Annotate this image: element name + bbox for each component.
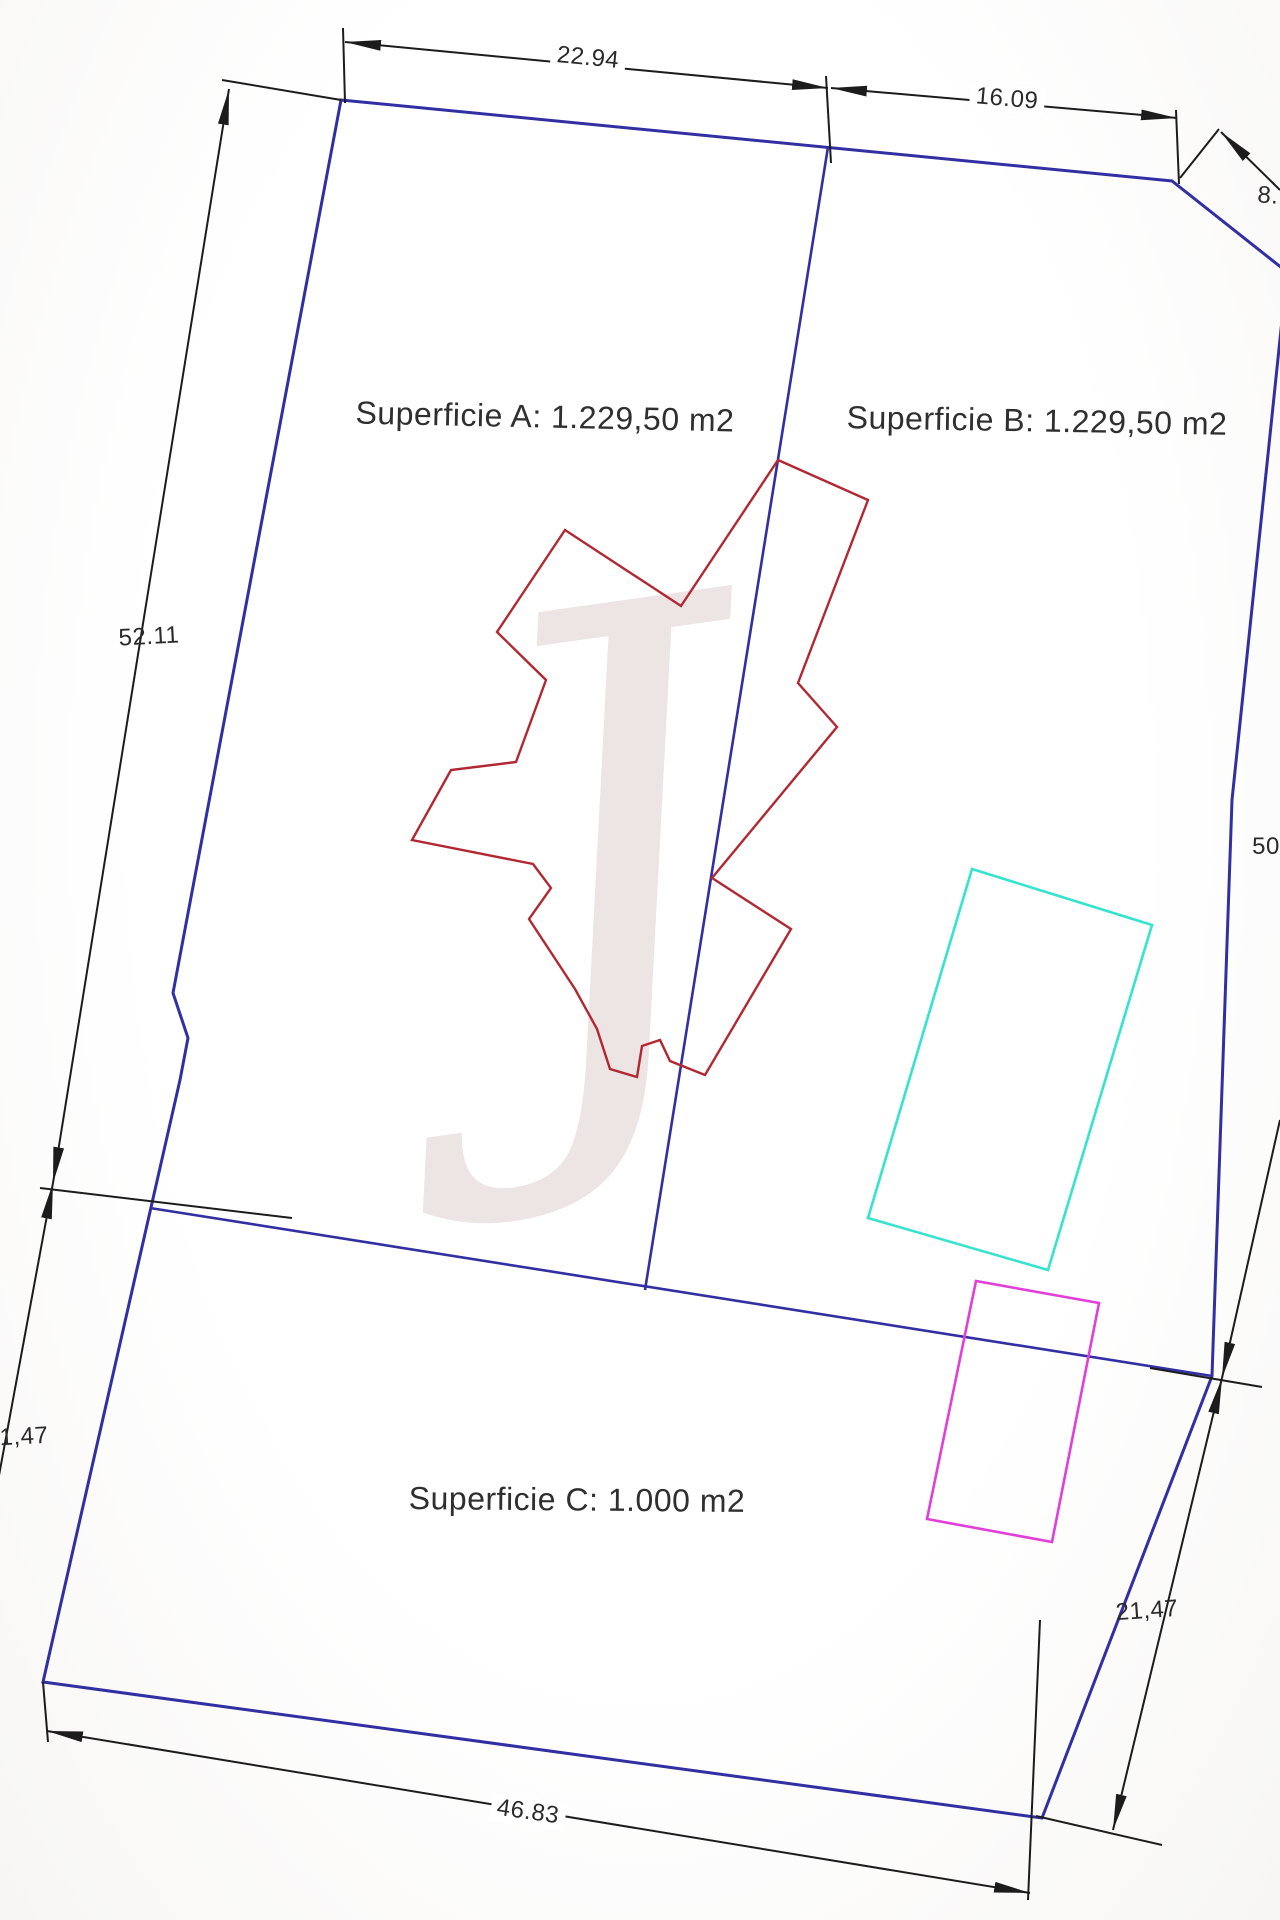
ext-chamfer-top xyxy=(1176,110,1179,184)
dim-line-1,47 xyxy=(0,1183,53,1535)
ext-chamfer-corner xyxy=(1180,129,1219,178)
divider-b-c xyxy=(150,1208,1212,1376)
ext-52.11-top xyxy=(222,80,341,100)
ext-bottom-right-horizontal xyxy=(1036,1816,1162,1845)
dim-1,47: 1,47 xyxy=(0,1422,49,1453)
divider-a-b xyxy=(645,147,828,1290)
plan-canvas: J Superficie A: 1.229,50 m2 Superficie B… xyxy=(0,0,1280,1920)
ext-bottom-left xyxy=(43,1682,48,1742)
ext-top-left-corner xyxy=(343,28,345,103)
ext-left-junction xyxy=(40,1188,292,1218)
pool-rectangle xyxy=(868,869,1152,1270)
dim-52.11: 52.11 xyxy=(118,621,180,652)
parcel-boundary xyxy=(43,100,1280,1818)
dim-21,47: 21,47 xyxy=(1115,1595,1179,1627)
ext-bottom-right-vertical xyxy=(1028,1620,1040,1900)
survey-drawing xyxy=(0,0,1280,1920)
building-footprint xyxy=(412,460,868,1077)
ext-divider-right xyxy=(1150,1368,1262,1387)
magenta-rectangle xyxy=(927,1281,1099,1542)
superficie-b-label: Superficie B: 1.229,50 m2 xyxy=(846,399,1227,443)
dim-50: 50 xyxy=(1252,833,1280,861)
superficie-a-label: Superficie A: 1.229,50 m2 xyxy=(355,395,735,440)
dim-line-50 xyxy=(1222,1120,1280,1378)
superficie-c-label: Superficie C: 1.000 m2 xyxy=(409,1480,746,1520)
dim-8: 8. xyxy=(1257,181,1280,210)
